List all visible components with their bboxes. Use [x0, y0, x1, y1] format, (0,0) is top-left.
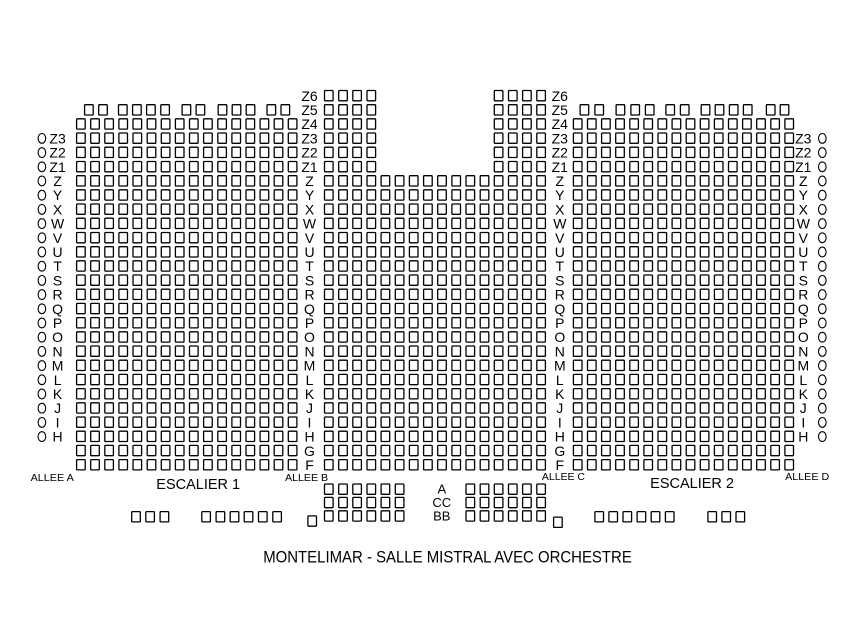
svg-text:ALLEE D: ALLEE D	[785, 472, 829, 483]
svg-text:ALLEE B: ALLEE B	[285, 473, 328, 484]
svg-text:ESCALIER 1: ESCALIER 1	[156, 477, 240, 493]
svg-text:H: H	[798, 429, 808, 445]
svg-text:ESCALIER 2: ESCALIER 2	[650, 476, 734, 492]
svg-text:ALLEE A: ALLEE A	[31, 473, 75, 484]
svg-text:MONTELIMAR - SALLE MISTRAL AVE: MONTELIMAR - SALLE MISTRAL AVEC ORCHESTR…	[263, 548, 632, 566]
svg-text:ALLEE C: ALLEE C	[542, 472, 585, 483]
svg-text:H: H	[53, 429, 63, 445]
svg-text:F: F	[305, 457, 314, 473]
svg-text:BB: BB	[433, 508, 450, 523]
svg-text:F: F	[556, 457, 565, 473]
